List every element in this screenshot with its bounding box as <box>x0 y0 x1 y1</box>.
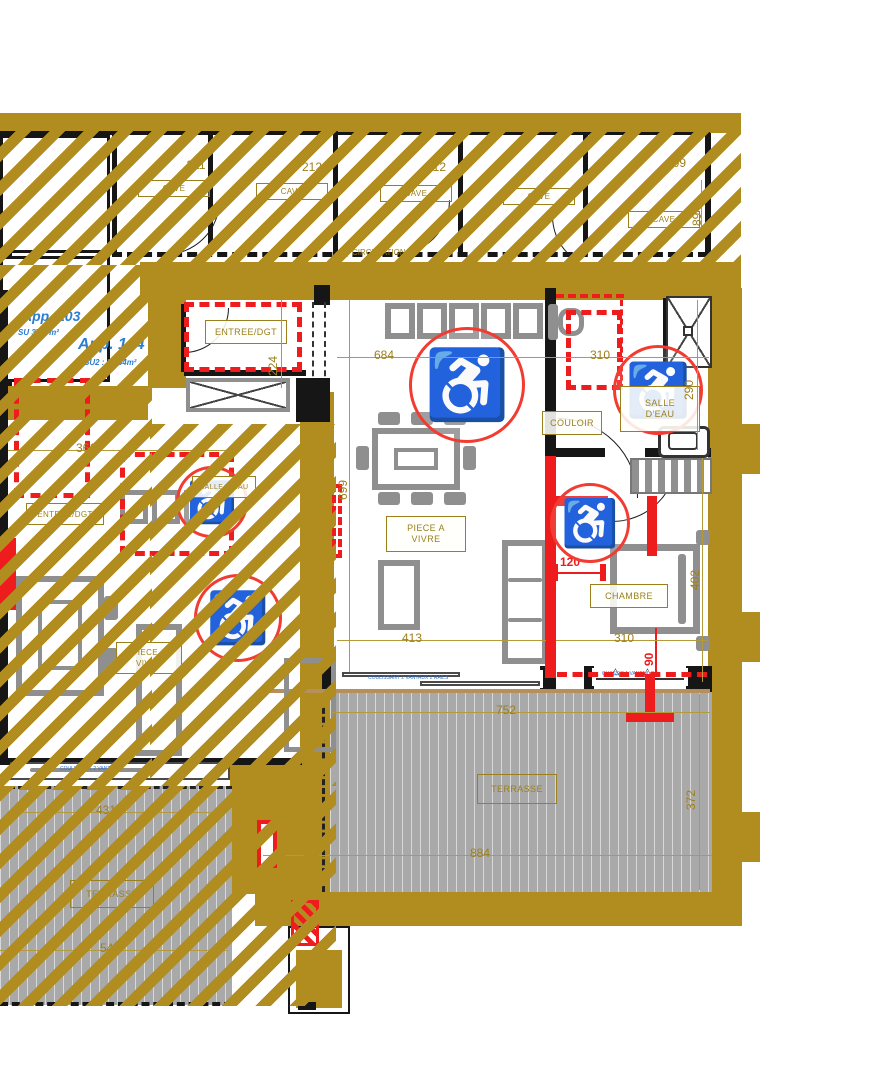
chambre-red-wall-stub <box>647 496 657 556</box>
sofa-cushion-line-2 <box>508 618 542 622</box>
chair-bottom-1 <box>378 492 400 505</box>
washbasin-inner <box>668 432 698 450</box>
chair-bottom-3 <box>444 492 466 505</box>
dim-884: 884 <box>470 846 490 860</box>
dim-752: 752 <box>496 703 516 717</box>
dim-224: 224 <box>266 338 280 376</box>
room-label-terrasse: TERRASSE <box>477 774 557 804</box>
dim-120-tick-left <box>552 564 558 581</box>
dim-372-line <box>699 694 700 890</box>
dim-290-line <box>697 300 698 450</box>
bed-pillow-bar <box>678 554 686 624</box>
kitchen-island-crossed <box>186 378 290 412</box>
salle-label-line2: D'EAU <box>646 409 675 420</box>
right-wall-pillar-3 <box>742 812 760 862</box>
kitchen-cabinet-5 <box>513 303 543 339</box>
armchair <box>378 560 420 630</box>
corridor-south-wall <box>140 262 741 300</box>
sofa-cushion-line-1 <box>508 578 542 582</box>
dim-402-line <box>702 458 703 682</box>
salle-red-dashed-top <box>556 294 624 298</box>
dim-310-chambre: 310 <box>614 631 634 645</box>
chambre-red-dashed-south <box>557 672 707 677</box>
living-north-jamb <box>314 285 330 305</box>
dim-752-line <box>332 712 710 713</box>
hatch-overlay-left-apartment <box>150 424 336 786</box>
dim-684: 684 <box>374 348 394 362</box>
dim-402: 402 <box>688 550 702 590</box>
hatch-overlay-left-strip <box>0 265 152 790</box>
nightstand-bottom <box>696 636 710 651</box>
wheelchair-zone-living: ♿ <box>409 327 525 443</box>
dim-90-line <box>655 628 657 674</box>
dim-699: 699 <box>336 460 350 500</box>
room-label-living: PIECE A VIVRE <box>386 516 466 552</box>
room-label-chambre: CHAMBRE <box>590 584 668 608</box>
salle-label-line1: SALLE <box>645 398 675 409</box>
entree-east-dashed-1 <box>312 302 314 386</box>
sofa <box>502 540 548 664</box>
nightstand-top <box>696 530 710 545</box>
chair-bottom-2 <box>411 492 433 505</box>
dim-120-line <box>556 572 604 574</box>
dim-120-tick-right <box>600 564 606 581</box>
dim-413-line <box>337 640 546 641</box>
dim-290: 290 <box>682 360 696 400</box>
towel-radiator <box>630 458 712 494</box>
hatch-overlay-top <box>0 113 741 265</box>
kitchen-cabinet-1 <box>385 303 415 339</box>
chair-right <box>463 446 476 470</box>
fridge <box>296 378 330 422</box>
living-window-note: COULISSANT 2 VANTAUX 2 RAILS <box>368 675 478 681</box>
dim-413: 413 <box>402 631 422 645</box>
dim-224-line <box>281 300 282 388</box>
hatch-overlay-left-terrace <box>0 786 336 1006</box>
dim-310-salle: 310 <box>590 348 610 362</box>
entree-east-dashed-2 <box>324 302 326 386</box>
chair-left <box>356 446 369 470</box>
right-gold-wall <box>708 288 742 916</box>
living-window-bar-2 <box>420 681 540 686</box>
chambre-red-tee-horizontal <box>626 712 674 722</box>
living-label-line2: VIVRE <box>411 534 440 545</box>
shower-drain <box>683 326 693 336</box>
wheelchair-icon: ♿ <box>561 496 618 551</box>
wheelchair-zone-chambre: ♿ <box>550 483 630 563</box>
wc-tank <box>548 304 558 340</box>
chambre-window-line <box>596 678 684 680</box>
room-label-couloir: COULOIR <box>542 411 602 435</box>
dining-table-inner <box>394 448 438 470</box>
chair-top-1 <box>378 412 400 425</box>
right-wall-pillar-2 <box>742 612 760 662</box>
living-label-line1: PIECE A <box>407 523 445 534</box>
dim-372: 372 <box>684 770 698 810</box>
floor-plan: 211 CAVE 212 CAVE 212 CAVE CAVE 109 CAVE… <box>0 0 876 1080</box>
right-wall-pillar-1 <box>742 424 760 474</box>
